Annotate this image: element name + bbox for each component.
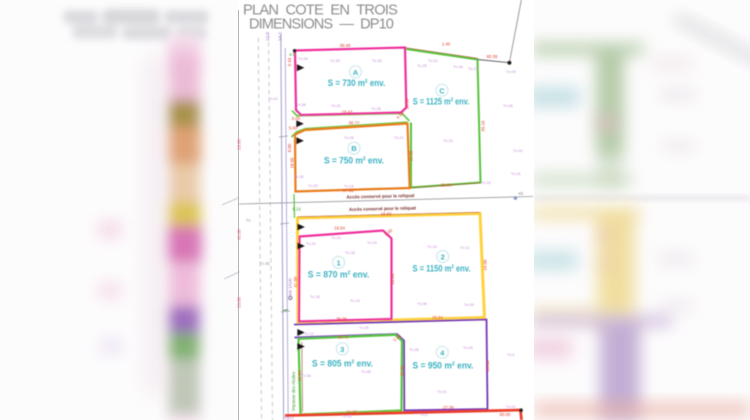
svg-text:B: B: [351, 144, 357, 153]
svg-text:Tn.16: Tn.16: [310, 295, 320, 299]
svg-text:A: A: [353, 68, 359, 77]
svg-text:Tn.06: Tn.06: [361, 370, 371, 374]
svg-text:Tn.05: Tn.05: [464, 303, 474, 307]
svg-text:Tn.44: Tn.44: [298, 57, 308, 61]
svg-text:Tn.23: Tn.23: [331, 236, 341, 240]
svg-text:19.93: 19.93: [381, 211, 392, 216]
svg-text:14.2: 14.2: [278, 32, 283, 41]
svg-text:19.43: 19.43: [342, 110, 353, 115]
svg-text:2: 2: [441, 253, 445, 262]
svg-text:39.06: 39.06: [336, 317, 347, 322]
svg-text:18.72: 18.72: [338, 335, 349, 340]
svg-text:23.00: 23.00: [237, 138, 242, 150]
svg-text:27.39: 27.39: [443, 405, 454, 410]
svg-text:Tn.45: Tn.45: [259, 261, 270, 266]
svg-text:60.00: 60.00: [500, 412, 511, 417]
svg-text:26.80: 26.80: [485, 360, 490, 371]
svg-text:29.64: 29.64: [441, 183, 452, 188]
svg-text:Tn.11: Tn.11: [460, 246, 469, 250]
svg-text:23.00: 23.00: [237, 296, 242, 308]
svg-text:39.48: 39.48: [340, 43, 351, 48]
svg-text:Tn.01: Tn.01: [506, 405, 516, 409]
svg-text:29.00: 29.00: [483, 259, 488, 270]
svg-text:Tn: Tn: [246, 218, 252, 223]
svg-text:Tn.08: Tn.08: [301, 374, 311, 378]
svg-text:55.19: 55.19: [481, 120, 486, 131]
svg-text:5.00: 5.00: [289, 126, 298, 131]
svg-text:Tn.08: Tn.08: [417, 302, 427, 306]
svg-text:Tn.01: Tn.01: [511, 172, 521, 176]
svg-text:18.50: 18.50: [290, 157, 295, 168]
svg-text:Tn.15: Tn.15: [468, 67, 478, 71]
svg-text:Zone 1AUc: Zone 1AUc: [288, 277, 293, 300]
svg-text:60.39: 60.39: [487, 54, 498, 59]
svg-text:Tn.02: Tn.02: [513, 149, 523, 153]
svg-text:Tn.24: Tn.24: [344, 185, 354, 189]
svg-text:Tn.09: Tn.09: [359, 326, 369, 330]
svg-text:19.05: 19.05: [409, 150, 414, 161]
svg-text:14.69: 14.69: [405, 98, 410, 109]
svg-text:S = 870 m² env.: S = 870 m² env.: [308, 270, 370, 281]
svg-text:Tn.03: Tn.03: [463, 346, 473, 350]
svg-text:3: 3: [340, 345, 344, 354]
svg-text:Tn.18: Tn.18: [453, 65, 463, 69]
svg-text:Tn.0: Tn.0: [420, 413, 428, 417]
svg-text:S = 730 m² env.: S = 730 m² env.: [328, 78, 386, 89]
svg-text:Tn.10: Tn.10: [481, 181, 491, 185]
svg-text:Tn.19: Tn.19: [443, 139, 453, 143]
svg-text:8.00: 8.00: [287, 143, 292, 152]
svg-text:1.40: 1.40: [442, 42, 451, 47]
svg-text:Tn.21: Tn.21: [394, 136, 404, 140]
svg-text:Tn.12: Tn.12: [304, 332, 314, 336]
svg-text:Tn.29: Tn.29: [308, 184, 318, 188]
svg-text:Tn.18: Tn.18: [345, 251, 355, 255]
svg-text:20.63: 20.63: [400, 365, 405, 376]
svg-text:Tn.09: Tn.09: [506, 70, 516, 74]
svg-text:6.21: 6.21: [293, 207, 302, 212]
svg-text:48: 48: [518, 191, 524, 196]
svg-text:Tn.22: Tn.22: [306, 242, 316, 246]
svg-text:S = 750 m² env.: S = 750 m² env.: [324, 156, 384, 167]
svg-text:DIMENSIONS — DP10: DIMENSIONS — DP10: [249, 17, 396, 33]
svg-text:Tn.41: Tn.41: [268, 97, 278, 101]
svg-text:Tn.14: Tn.14: [427, 245, 437, 249]
svg-text:Tn.39: Tn.39: [330, 59, 340, 63]
svg-text:29.64: 29.64: [432, 315, 443, 320]
svg-text:Tn.35: Tn.35: [372, 59, 382, 63]
svg-text:S = 1150 m² env.: S = 1150 m² env.: [413, 264, 471, 275]
svg-text:Tn.01: Tn.01: [437, 390, 447, 394]
svg-text:Tn.13: Tn.13: [350, 299, 360, 303]
svg-text:C: C: [439, 86, 445, 95]
svg-text:Tn.06: Tn.06: [503, 104, 513, 108]
svg-text:Tn.38: Tn.38: [296, 103, 306, 107]
svg-text:Tn.05: Tn.05: [409, 348, 419, 352]
svg-text:Impasse des Aludes: Impasse des Aludes: [291, 371, 296, 411]
svg-text:Tn.31: Tn.31: [331, 104, 341, 108]
svg-text:12.0: 12.0: [265, 32, 270, 41]
svg-text:Tn.04: Tn.04: [284, 417, 294, 420]
svg-text:Tn.28: Tn.28: [371, 107, 381, 111]
svg-text:4.6: 4.6: [289, 52, 296, 57]
svg-text:Tn.26: Tn.26: [344, 136, 354, 140]
svg-text:41.00: 41.00: [293, 276, 298, 287]
svg-text:19.54: 19.54: [334, 226, 345, 231]
svg-text:9.43: 9.43: [287, 57, 292, 66]
svg-text:S = 950 m² env.: S = 950 m² env.: [413, 360, 474, 371]
svg-text:30.77: 30.77: [349, 121, 360, 126]
svg-text:Tn.19: Tn.19: [367, 241, 377, 245]
svg-text:Tn.02: Tn.02: [342, 415, 352, 419]
svg-text:41.00: 41.00: [237, 228, 242, 240]
svg-text:S = 805 m² env.: S = 805 m² env.: [312, 359, 373, 370]
svg-text:Tn.30: Tn.30: [294, 175, 304, 179]
svg-text:Tn.22: Tn.22: [428, 59, 438, 63]
svg-text:Tn.25: Tn.25: [417, 64, 427, 68]
svg-text:37.06: 37.06: [343, 188, 354, 193]
svg-text:5.00: 5.00: [292, 116, 301, 121]
svg-text:Tn.0: Tn.0: [507, 353, 515, 357]
svg-text:28.06: 28.06: [390, 273, 395, 284]
svg-text:S = 1125 m² env.: S = 1125 m² env.: [413, 97, 470, 108]
